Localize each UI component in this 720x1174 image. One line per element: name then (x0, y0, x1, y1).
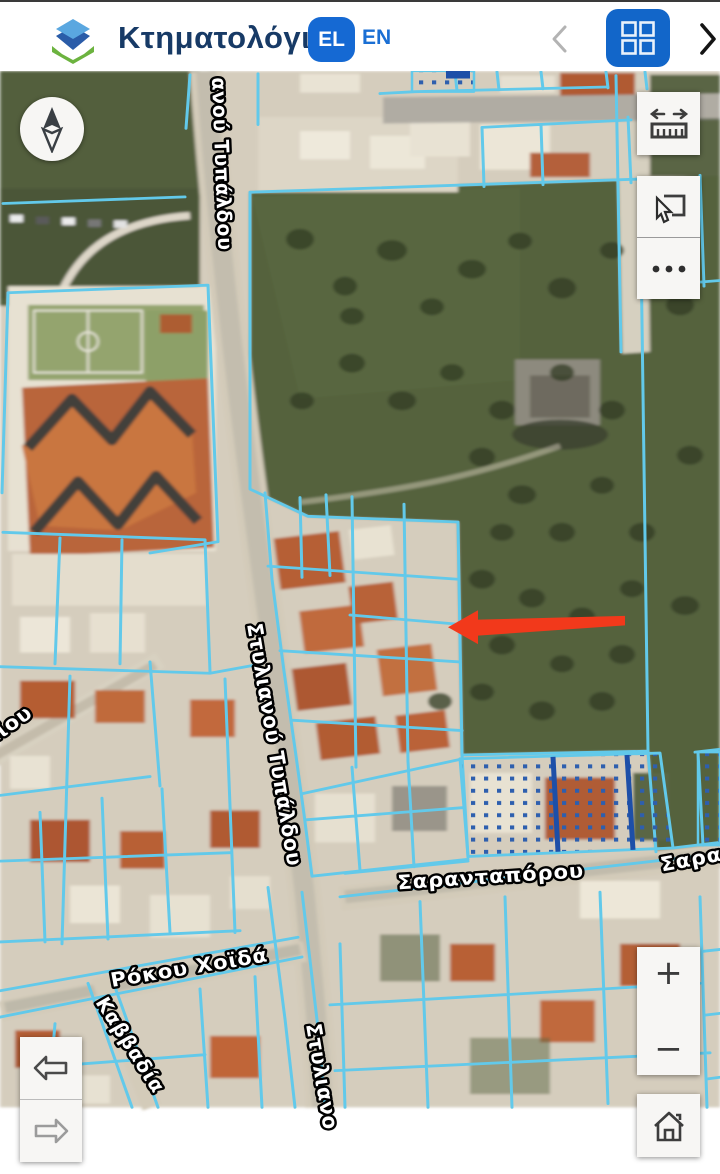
chevron-left-icon[interactable] (549, 24, 571, 59)
cadastre-logo-icon[interactable] (44, 10, 102, 66)
app-screen: Κτηματολόγιο EL EN (0, 0, 720, 1174)
ruler-icon (649, 107, 689, 141)
select-area-button[interactable] (637, 176, 700, 237)
compass-needle-icon (39, 105, 65, 153)
back-button[interactable] (20, 1037, 82, 1099)
grid-icon (621, 21, 655, 55)
map-viewport[interactable]: ανού Τυπάλδου Στυλιανού Τυπάλδου Στυλιαν… (0, 71, 720, 1174)
home-extent-button[interactable] (637, 1094, 700, 1157)
home-icon (649, 1106, 689, 1146)
zoom-in-button[interactable]: + (637, 947, 700, 999)
compass-button[interactable] (20, 97, 84, 161)
apps-grid-button[interactable] (606, 9, 670, 67)
zoom-out-button[interactable]: − (637, 1023, 700, 1075)
app-header: Κτηματολόγιο EL EN (0, 0, 720, 71)
chevron-right-icon[interactable] (697, 21, 719, 62)
ellipsis-icon (650, 264, 688, 274)
app-title: Κτηματολόγιο (118, 2, 330, 73)
select-tools-panel (637, 176, 700, 299)
language-el-button[interactable]: EL (308, 17, 355, 62)
measure-button[interactable] (637, 92, 700, 155)
zoom-panel: + − (637, 947, 700, 1075)
pointer-select-icon (650, 188, 688, 226)
history-nav-panel (20, 1037, 82, 1162)
satellite-imagery (0, 71, 720, 1107)
back-arrow-icon (33, 1055, 69, 1081)
forward-button[interactable] (20, 1100, 82, 1162)
forward-arrow-icon (33, 1118, 69, 1144)
more-options-button[interactable] (637, 238, 700, 299)
map-canvas: ανού Τυπάλδου Στυλιανού Τυπάλδου Στυλιαν… (0, 71, 720, 1174)
language-en-button[interactable]: EN (362, 2, 391, 73)
